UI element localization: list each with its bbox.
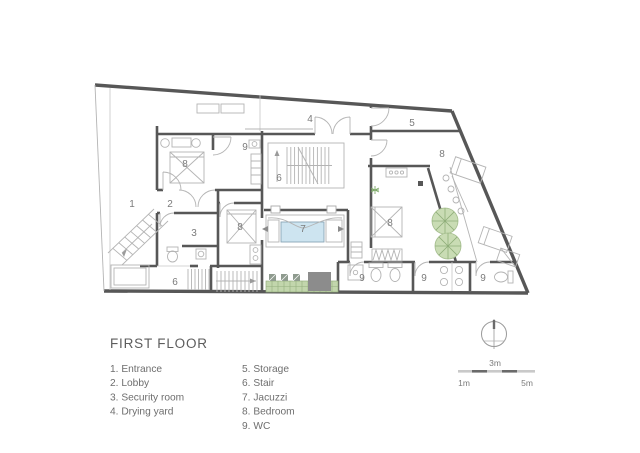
legend-item-lobby: 2. Lobby — [110, 378, 150, 389]
legend-item-bedroom: 8. Bedroom — [242, 407, 295, 418]
entry-stair — [188, 269, 257, 292]
legend: FIRST FLOOR 1. Entrance 2. Lobby 3. Secu… — [110, 336, 295, 432]
security-room-fixtures — [157, 247, 206, 266]
legend-item-storage: 5. Storage — [242, 364, 289, 375]
room-label-bedroom-d: 8 — [387, 218, 393, 229]
room-label-wc-a: 9 — [242, 142, 248, 153]
reflecting-pool — [111, 265, 149, 288]
column — [418, 181, 423, 186]
room-label-jacuzzi: 7 — [300, 224, 306, 235]
scale-label-right: 5m — [521, 378, 533, 388]
room-label-wc-c: 9 — [421, 273, 427, 284]
scale-bar: 3m 1m 5m — [458, 358, 535, 388]
room-label-wc-b: 9 — [359, 273, 365, 284]
legend-item-wc: 9. WC — [242, 421, 270, 432]
room-label-security-room: 3 — [191, 228, 197, 239]
room-label-stair-entry: 6 — [172, 277, 178, 288]
page-title: FIRST FLOOR — [110, 336, 208, 351]
tree-icon — [435, 233, 461, 259]
scale-label-mid: 3m — [489, 358, 501, 368]
tree-icon — [432, 208, 458, 234]
wc-fixtures — [348, 248, 520, 291]
arrow-left-icon — [262, 226, 268, 232]
room-label-bedroom-a: 8 — [182, 159, 188, 170]
legend-item-jacuzzi: 7. Jacuzzi — [242, 392, 287, 403]
wardrobe — [372, 249, 402, 261]
bedroom-b — [227, 210, 261, 264]
room-label-storage: 5 — [409, 118, 415, 129]
bedroom-d-mid-right — [371, 168, 423, 261]
north-compass-icon — [482, 319, 507, 349]
room-label-lobby: 2 — [167, 199, 173, 210]
interior-walls — [140, 105, 514, 292]
room-label-wc-d: 9 — [480, 273, 486, 284]
room-label-bedroom-b: 8 — [237, 222, 243, 233]
legend-item-security-room: 3. Security room — [110, 392, 184, 403]
entrance-ramp — [108, 209, 168, 265]
legend-item-drying-yard: 4. Drying yard — [110, 407, 174, 418]
room-label-entrance: 1 — [129, 199, 135, 210]
legend-item-stair: 6. Stair — [242, 378, 275, 389]
legend-item-entrance: 1. Entrance — [110, 364, 162, 375]
floor-plan-canvas: 1 2 3 4 5 6 6 7 8 8 8 8 9 9 9 9 FIRST FL… — [0, 0, 640, 453]
stepping-stones — [269, 274, 300, 281]
scale-label-left: 1m — [458, 378, 470, 388]
arrow-right-icon — [338, 226, 344, 232]
room-label-stair-main: 6 — [276, 173, 282, 184]
deck-bench — [308, 272, 331, 291]
room-label-drying-yard: 4 — [307, 114, 313, 125]
room-label-bedroom-c: 8 — [439, 149, 445, 160]
